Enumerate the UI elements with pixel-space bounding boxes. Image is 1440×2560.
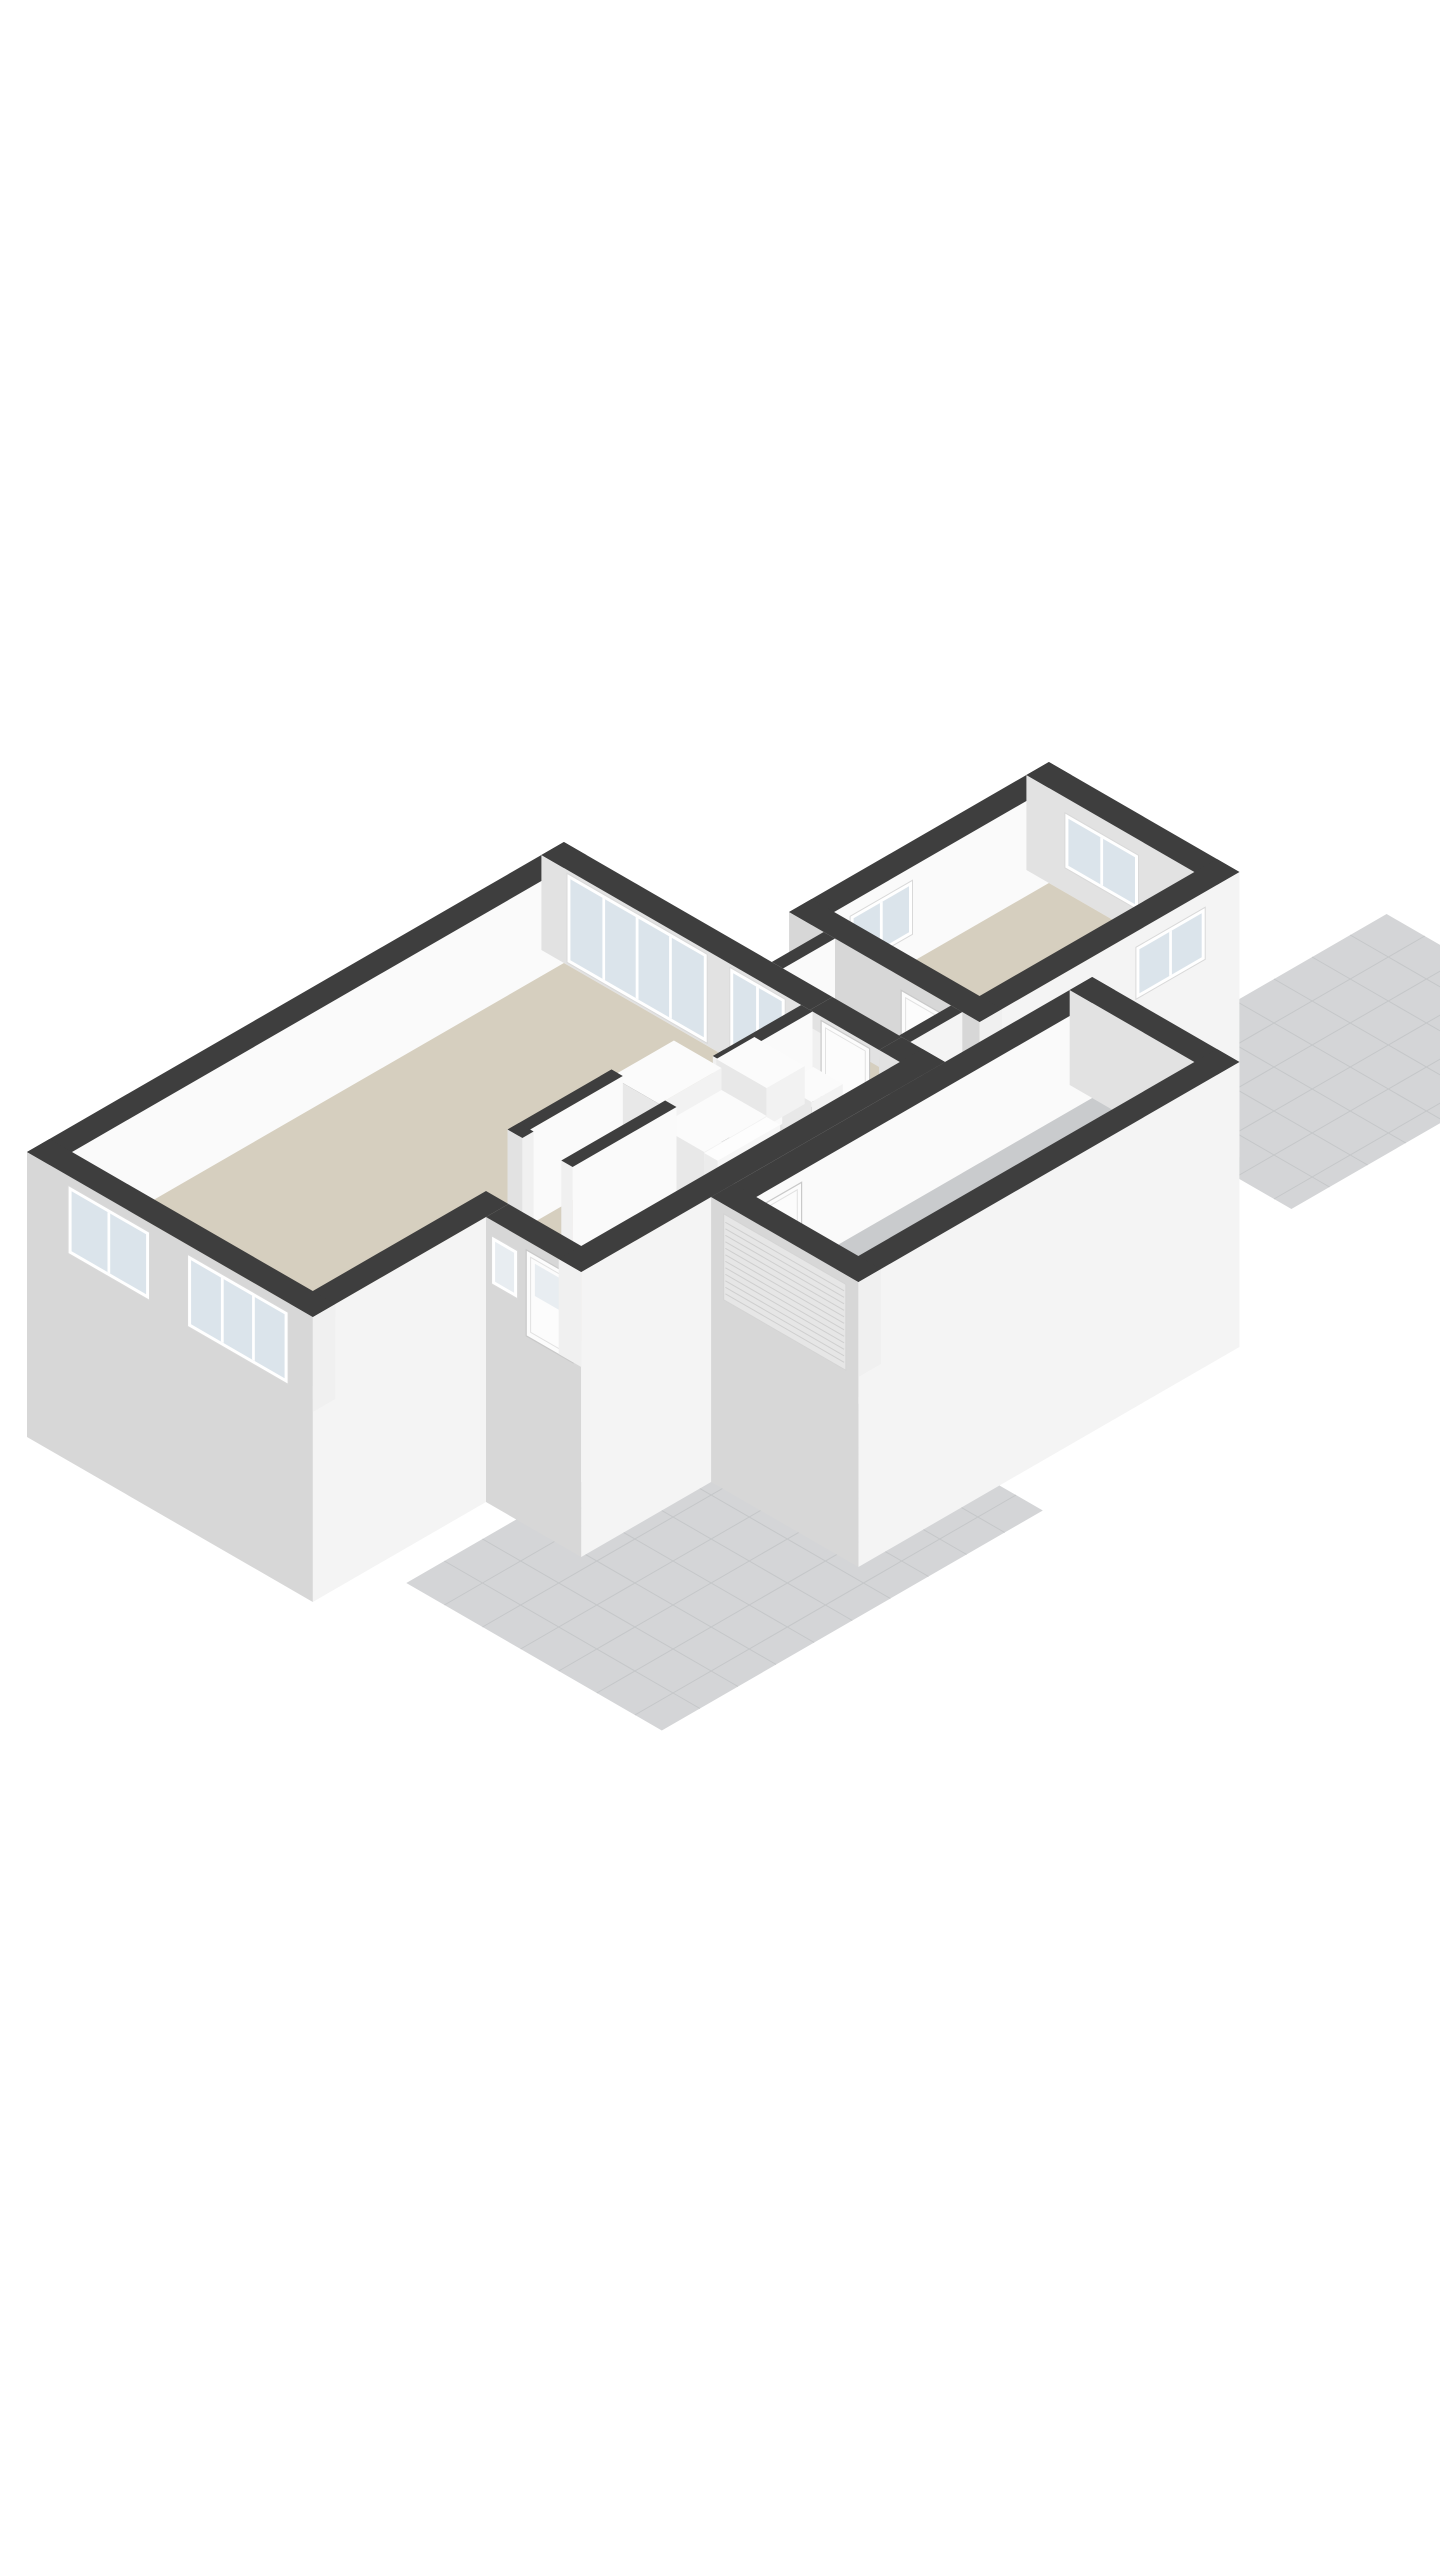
living-window-pair-mullion: [108, 1212, 111, 1274]
living-sliding-door-mullion: [602, 898, 605, 981]
shed-window-northeast-mullion: [1100, 837, 1103, 886]
living-sliding-door-mullion: [636, 917, 639, 1000]
floorplan-3d-render: [0, 0, 1440, 2560]
house-facade-southwest-cap: [313, 1304, 336, 1412]
living-window-triple-mullion: [221, 1278, 224, 1344]
living-sliding-door-mullion: [669, 936, 672, 1019]
shed-window-southeast-mullion: [1169, 931, 1172, 977]
floorplan-page: [0, 0, 1440, 2560]
living-window-triple-mullion: [252, 1296, 255, 1362]
hall-facade-southeast-cap: [559, 1259, 582, 1367]
garage-gable-southwest-cap: [858, 1269, 881, 1377]
